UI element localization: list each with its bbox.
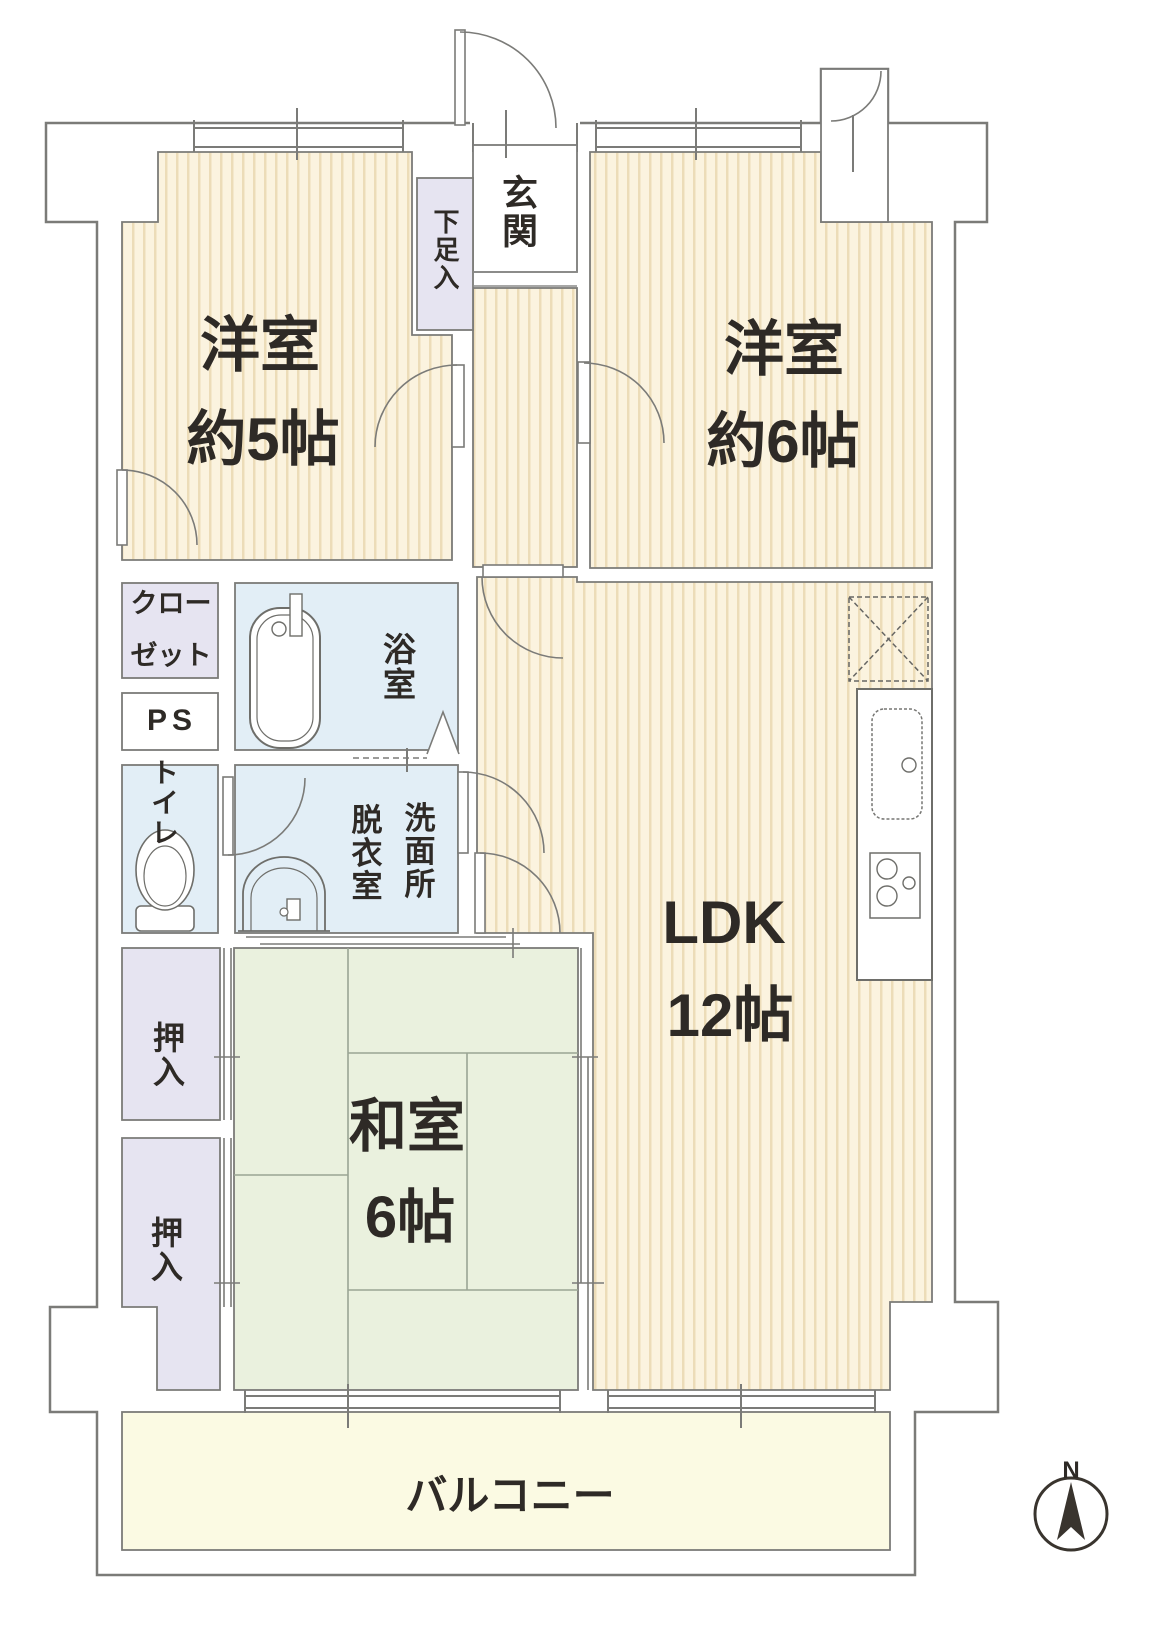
dressing-room-label: 脱衣室 <box>349 804 380 903</box>
toilet-label: トイレ <box>149 758 177 848</box>
west6-room-label: 洋室 <box>724 320 844 380</box>
washitsu-room-label: 和室 <box>349 1098 465 1156</box>
service-door-recess <box>821 69 888 222</box>
compass-icon <box>1035 1478 1107 1550</box>
closet-label-line1: クロー <box>131 591 212 618</box>
washitsu-size-label: 6帖 <box>365 1189 455 1247</box>
west5-room-label: 洋室 <box>200 316 320 376</box>
ldk-size-label: 12帖 <box>667 986 794 1046</box>
ldk-room-label: LDK <box>662 893 785 953</box>
kitchen-counter <box>857 689 932 980</box>
bathtub-icon <box>250 594 320 748</box>
oshiire-upper-label: 押入 <box>151 1021 183 1089</box>
west5-size-label: 約5帖 <box>186 410 339 470</box>
pipe-space-label: PS <box>147 706 197 736</box>
bath-label: 浴室 <box>381 632 414 702</box>
washroom-label: 洗面所 <box>402 802 433 901</box>
west6-size-label: 約6帖 <box>706 412 859 472</box>
washitsu-room <box>234 948 578 1390</box>
oshiire-lower-label: 押入 <box>149 1216 181 1284</box>
closet-label-line2: ゼット <box>131 643 212 670</box>
genkan-label: 玄関 <box>499 174 535 250</box>
floor-plan: 洋室 約5帖 洋室 約6帖 LDK 12帖 和室 6帖 バルコニー 玄関 下足入… <box>0 0 1154 1637</box>
balcony-label: バルコニー <box>405 1475 614 1517</box>
compass-north-label: N <box>1062 1459 1079 1483</box>
hallway-floor <box>473 288 577 567</box>
shoe-cabinet-label: 下足入 <box>432 208 458 292</box>
stove-icon <box>870 853 920 918</box>
